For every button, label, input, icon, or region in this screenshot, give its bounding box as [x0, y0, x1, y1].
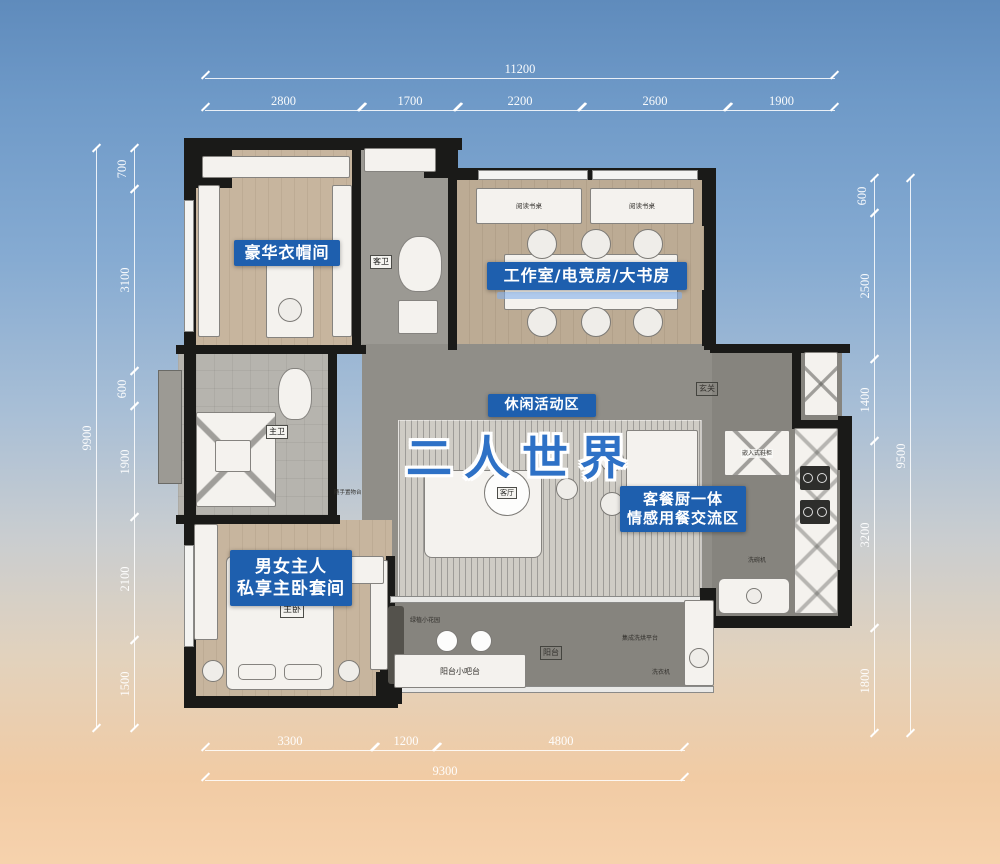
balcony-label: 阳台	[540, 646, 562, 660]
zone-label-text: 客餐厨一体	[620, 490, 746, 510]
room-label-guest-bath: 客卫	[370, 255, 392, 269]
dim-bottom-segments: 3300 1200 4800	[205, 738, 685, 752]
dim-value: 4800	[437, 734, 685, 749]
wardrobe-cabinet	[198, 185, 220, 337]
bay-window	[158, 370, 182, 484]
stove-burners	[800, 466, 830, 490]
bar-stool	[470, 630, 492, 652]
dim-value: 1400	[858, 388, 873, 413]
desk-label: 阅读书桌	[516, 202, 542, 211]
chair	[633, 307, 663, 337]
chair	[633, 229, 663, 259]
dim-value: 2500	[858, 274, 873, 299]
dim-segment: 1400	[862, 359, 876, 441]
zone-label-text: 情感用餐交流区	[620, 509, 746, 529]
dim-value: 1500	[118, 672, 133, 697]
dim-value: 9300	[205, 764, 685, 779]
dim-segment: 600	[122, 371, 136, 406]
chair	[581, 307, 611, 337]
zone-label-study: 工作室/电竞房/大书房	[487, 262, 687, 290]
dim-segment: 1200	[375, 738, 437, 752]
shelf-label: 随手置物台	[334, 489, 362, 498]
dim-segment: 9500	[898, 178, 912, 733]
dim-segment: 600	[862, 178, 876, 213]
dim-value: 2600	[582, 94, 728, 109]
washer-column	[684, 600, 714, 686]
bar-label: 阳台小吧台	[440, 667, 480, 676]
dim-value: 1900	[118, 449, 133, 474]
window	[184, 545, 194, 647]
dim-value: 11200	[205, 62, 835, 77]
toilet	[398, 236, 442, 292]
dim-segment: 4800	[437, 738, 685, 752]
zone-label-underline	[497, 292, 682, 299]
window	[478, 170, 588, 180]
dim-segment: 1900	[728, 98, 835, 112]
dim-segment: 2800	[205, 98, 362, 112]
pillow	[238, 664, 276, 680]
desk-label: 阅读书桌	[629, 202, 655, 211]
dim-value: 2200	[458, 94, 582, 109]
dim-segment: 3300	[205, 738, 375, 752]
washer-label: 洗衣机	[652, 668, 670, 677]
dim-segment: 2100	[122, 517, 136, 640]
dim-segment: 9300	[205, 768, 685, 782]
vanity-sink	[215, 440, 251, 472]
balcony-bar: 阳台小吧台	[394, 654, 526, 688]
zone-label-text: 休闲活动区	[488, 396, 596, 414]
dim-left-segments: 700 3100 600 1900 2100 1500	[122, 148, 136, 728]
sink-basin	[746, 588, 762, 604]
dim-left-total: 9900	[84, 148, 98, 728]
dim-value: 600	[855, 186, 870, 205]
dim-value: 9900	[80, 426, 95, 451]
dim-value: 700	[115, 159, 130, 178]
wall	[176, 515, 340, 524]
zone-label-master-suite: 男女主人 私享主卧套间	[230, 550, 352, 606]
dim-segment: 700	[122, 148, 136, 189]
wall	[176, 345, 366, 354]
wardrobe-cabinet	[202, 156, 350, 178]
dim-value: 2100	[118, 566, 133, 591]
dim-segment: 2500	[862, 213, 876, 359]
floor-plan-scene: 11200 2800 1700 2200 2600 1900 9900 700 …	[0, 0, 1000, 864]
zone-label-text: 男女主人	[230, 556, 352, 578]
reading-desk: 阅读书桌	[590, 188, 694, 224]
dim-segment: 3100	[122, 189, 136, 371]
wall	[792, 348, 801, 426]
dim-segment: 2600	[582, 98, 728, 112]
dishwasher-label: 洗碗机	[748, 556, 766, 565]
dim-top-segments: 2800 1700 2200 2600 1900	[205, 98, 835, 112]
dim-segment: 1700	[362, 98, 458, 112]
dim-segment: 1800	[862, 628, 876, 733]
dim-value: 2800	[205, 94, 362, 109]
garden-label: 绿植小花园	[410, 616, 440, 625]
entry-label: 玄关	[696, 382, 718, 396]
laundry-label: 集成洗烘平台	[622, 634, 658, 643]
chair	[581, 229, 611, 259]
zone-label-leisure: 休闲活动区	[488, 394, 596, 417]
dim-value: 600	[115, 379, 130, 398]
dim-value: 1700	[362, 94, 458, 109]
shoe-cabinet-label: 嵌入式鞋柜	[741, 449, 773, 458]
wall	[184, 696, 398, 708]
dim-top-total: 11200	[205, 66, 835, 80]
stool	[278, 298, 302, 322]
dim-segment: 2200	[458, 98, 582, 112]
dim-right-segments: 600 2500 1400 3200 1800	[862, 178, 876, 733]
chair	[527, 307, 557, 337]
dim-value: 3200	[858, 522, 873, 547]
zone-label-wardrobe: 豪华衣帽间	[234, 240, 340, 266]
pillow	[284, 664, 322, 680]
nightstand	[338, 660, 360, 682]
washing-machine-drum	[689, 648, 709, 668]
shoe-cabinet: 嵌入式鞋柜	[724, 430, 790, 476]
wall	[352, 138, 361, 352]
dim-right-total: 9500	[898, 178, 912, 733]
column	[838, 570, 852, 624]
zone-label-dining: 客餐厨一体 情感用餐交流区	[620, 486, 746, 532]
dim-segment: 1900	[122, 406, 136, 517]
bedroom-wardrobe	[194, 524, 218, 640]
reading-desk: 阅读书桌	[476, 188, 582, 224]
dim-segment: 1500	[122, 640, 136, 728]
tall-cabinet	[804, 352, 838, 416]
sink	[398, 300, 438, 334]
dim-segment: 9900	[84, 148, 98, 728]
nightstand	[202, 660, 224, 682]
dim-value: 1200	[375, 734, 437, 749]
zone-label-text: 私享主卧套间	[230, 578, 352, 600]
hall-cabinet	[364, 148, 436, 172]
zone-label-text: 豪华衣帽间	[234, 243, 340, 264]
wall	[710, 616, 850, 628]
bar-stool	[436, 630, 458, 652]
toilet	[278, 368, 312, 420]
room-label-living: 客厅	[497, 487, 517, 499]
dim-value: 3100	[118, 268, 133, 293]
zone-label-text: 工作室/电竞房/大书房	[487, 266, 687, 287]
page-title: 二人世界	[406, 422, 638, 488]
dim-value: 9500	[894, 443, 909, 468]
wall	[328, 352, 337, 524]
dim-value: 1800	[858, 668, 873, 693]
window	[592, 170, 698, 180]
column	[838, 416, 852, 470]
dim-bottom-total: 9300	[205, 768, 685, 782]
dim-segment: 3200	[862, 441, 876, 628]
dim-value: 1900	[728, 94, 835, 109]
column	[702, 168, 716, 226]
dim-segment: 11200	[205, 66, 835, 80]
window	[184, 200, 194, 332]
stove-burners	[800, 500, 830, 524]
kitchen-sink	[718, 578, 790, 614]
room-label-master-bath: 主卫	[266, 425, 288, 439]
chair	[527, 229, 557, 259]
column	[702, 290, 716, 346]
dim-value: 3300	[205, 734, 375, 749]
balcony-door-glass	[390, 596, 714, 603]
